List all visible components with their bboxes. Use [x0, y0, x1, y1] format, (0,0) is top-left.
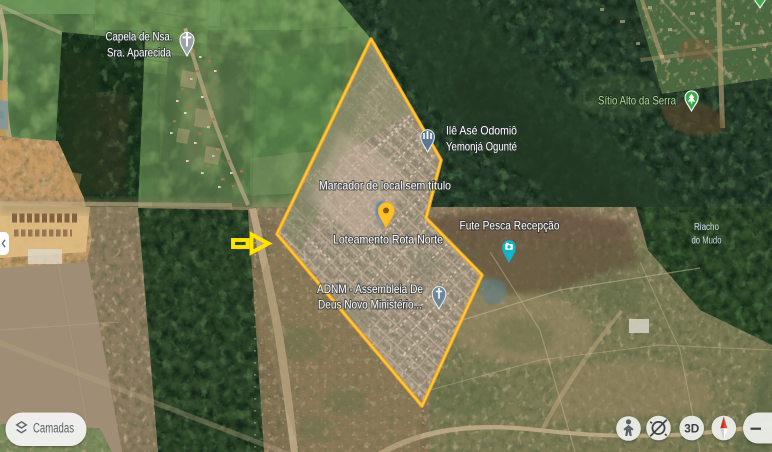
svg-text:3D: 3D: [684, 422, 699, 436]
svg-text:Yemonjá Ogunté: Yemonjá Ogunté: [446, 140, 517, 154]
svg-text:Deus Novo Ministério...: Deus Novo Ministério...: [318, 298, 422, 312]
svg-text:Sítio Alto da Serra: Sítio Alto da Serra: [598, 94, 676, 108]
svg-text:Fute Pesca Recepção: Fute Pesca Recepção: [460, 219, 560, 233]
svg-text:Loteamento Rota Norte: Loteamento Rota Norte: [333, 233, 443, 247]
svg-text:Camadas: Camadas: [33, 421, 74, 436]
svg-text:ADNM - Assembleia De: ADNM - Assembleia De: [317, 282, 423, 296]
svg-text:Capela de Nsa.: Capela de Nsa.: [106, 30, 173, 44]
svg-text:do Mudo: do Mudo: [692, 236, 722, 247]
svg-text:Marcador de local sem título: Marcador de local sem título: [319, 179, 451, 193]
svg-text:Riacho: Riacho: [694, 222, 719, 233]
svg-text:Sra. Aparecida: Sra. Aparecida: [107, 46, 171, 60]
svg-text:Ilê Asé Odomiô: Ilê Asé Odomiô: [446, 124, 517, 138]
